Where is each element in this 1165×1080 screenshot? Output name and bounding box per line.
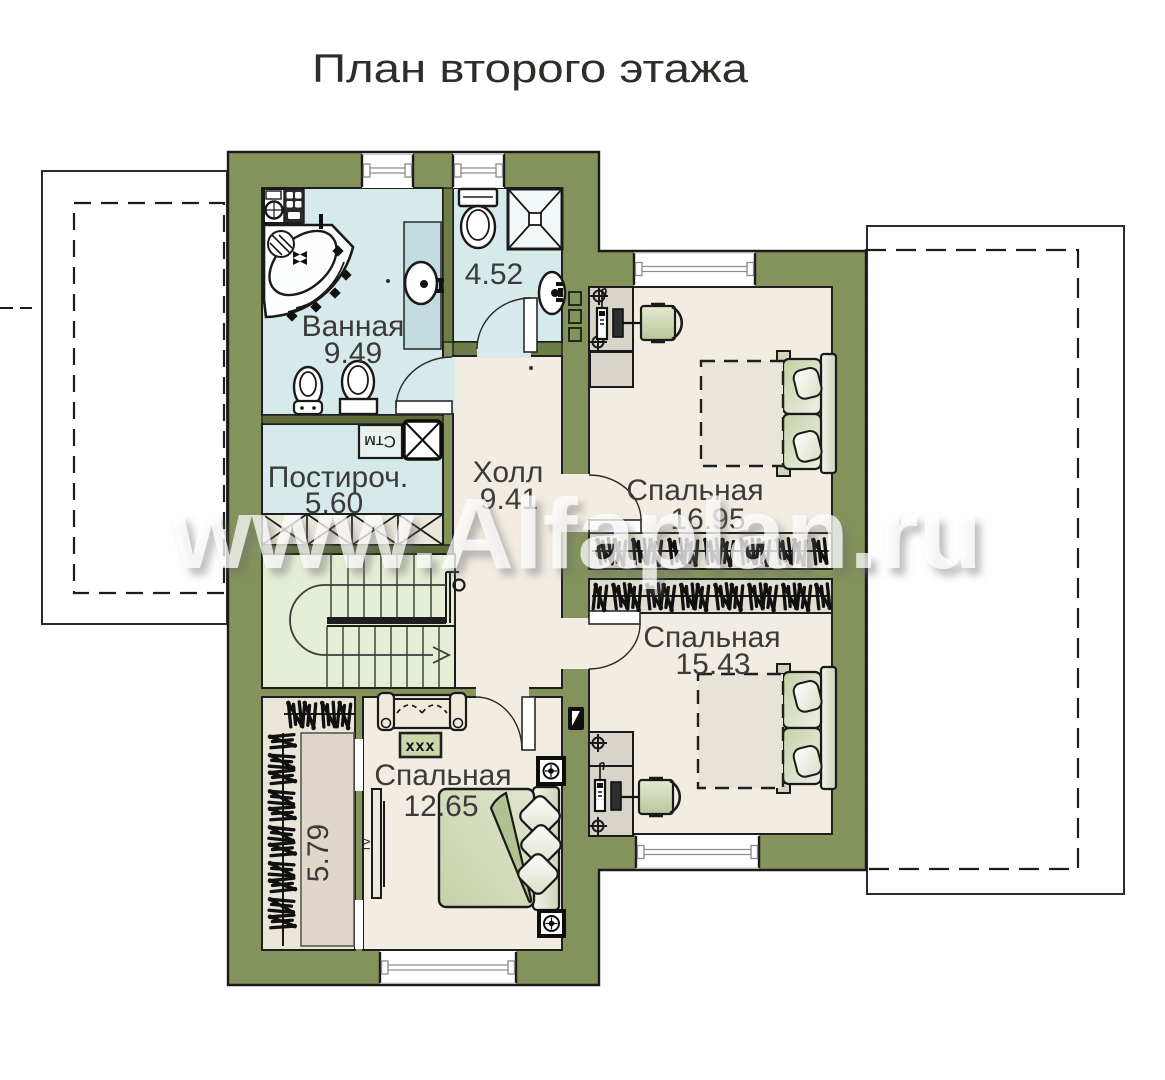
- svg-text:5.79: 5.79: [302, 824, 335, 882]
- svg-text:Стм: Стм: [364, 432, 396, 451]
- svg-text:4.52: 4.52: [465, 258, 523, 291]
- svg-text:9.49: 9.49: [324, 337, 382, 370]
- svg-text:Спальная: Спальная: [374, 759, 511, 792]
- svg-text:TV: TV: [361, 837, 373, 852]
- svg-text:12.65: 12.65: [403, 790, 478, 823]
- svg-text:План второго этажа: План второго этажа: [312, 47, 749, 91]
- svg-text:xxx: xxx: [406, 738, 436, 755]
- svg-text:www.Alfaplan.ru: www.Alfaplan.ru: [170, 478, 982, 590]
- svg-text:15.43: 15.43: [675, 648, 750, 681]
